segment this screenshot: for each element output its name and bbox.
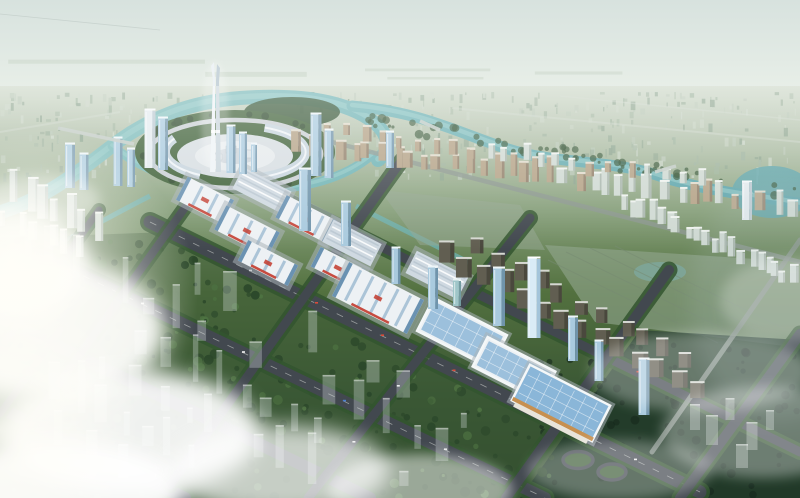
block-tree — [227, 380, 230, 383]
slab-building-side — [487, 267, 491, 284]
slab-building — [515, 262, 528, 280]
block-tree — [501, 415, 510, 424]
block-tree — [351, 337, 360, 346]
tower-highlight — [569, 319, 570, 359]
ghost-building-top — [397, 370, 410, 372]
slab-building-roof — [553, 310, 568, 312]
block-tree — [298, 343, 303, 348]
block-tree — [204, 355, 214, 365]
ghost-building — [367, 360, 380, 382]
block-tree — [409, 383, 417, 391]
horizon-haze-strip — [365, 69, 490, 72]
car — [381, 334, 384, 336]
slab-building — [553, 310, 568, 329]
ghost-building-top — [249, 341, 261, 343]
block-tree — [246, 292, 251, 297]
glass-tower-side — [398, 249, 401, 284]
slab-building-side — [547, 304, 551, 318]
horizon-haze-strip — [535, 71, 623, 74]
ghost-building — [397, 370, 410, 397]
ghost-building-top — [354, 380, 365, 382]
slab-building-roof — [477, 265, 491, 267]
glass-tower-roof — [428, 266, 438, 268]
block-tree — [403, 414, 410, 421]
ghost-building-top — [243, 385, 252, 387]
block-tree — [188, 367, 193, 372]
ghost-building-top — [195, 263, 201, 265]
ghost-building — [461, 413, 467, 428]
ghost-building — [414, 425, 420, 449]
slab-building-side — [631, 323, 634, 336]
slab-building-side — [604, 310, 607, 323]
slab-building-front — [596, 309, 604, 323]
ghost-building — [223, 271, 237, 311]
block-tree — [428, 396, 436, 404]
block-tree — [481, 426, 491, 436]
block-tree — [473, 444, 478, 449]
slab-building — [550, 283, 562, 302]
slab-building-front — [550, 285, 558, 303]
dark-field-tree — [620, 400, 625, 405]
glass-tower-side — [502, 269, 505, 326]
ghost-building-top — [314, 417, 322, 419]
block-tree — [203, 300, 206, 303]
block-tree — [527, 436, 531, 440]
slab-building-front — [553, 311, 564, 329]
block-tree — [427, 422, 436, 431]
block-tree — [212, 284, 218, 290]
slab-building-front — [456, 258, 467, 277]
glass-tower-roof — [453, 279, 461, 281]
ghost-building-top — [223, 271, 237, 273]
car — [343, 400, 346, 402]
car — [453, 370, 456, 372]
block-tree — [234, 366, 239, 371]
block-tree — [256, 412, 260, 416]
slab-building-roof — [596, 328, 611, 330]
slab-building-roof — [515, 262, 528, 264]
ghost-building-top — [461, 413, 467, 415]
slab-building-roof — [550, 283, 562, 285]
tower-highlight — [529, 260, 530, 336]
car — [315, 302, 318, 304]
ghost-building-top — [197, 321, 206, 323]
tower-highlight — [454, 282, 455, 304]
slab-building-side — [501, 255, 505, 267]
block-tree — [211, 311, 218, 318]
slab-building-front — [575, 303, 584, 315]
slab-building-roof — [456, 257, 472, 259]
ghost-building-top — [291, 404, 298, 406]
block-tree — [454, 439, 459, 444]
tower-highlight — [429, 269, 430, 307]
ghost-building-top — [308, 311, 317, 313]
glass-tower-front — [453, 280, 459, 306]
slab-building-side — [524, 264, 528, 280]
block-tree — [367, 392, 372, 397]
block-tree — [243, 284, 252, 293]
glass-tower-roof — [528, 257, 541, 259]
slab-building-front — [623, 322, 632, 336]
block-tree — [432, 416, 438, 422]
slab-building-roof — [575, 301, 588, 303]
slab-building-side — [559, 286, 562, 303]
ghost-building-top — [383, 398, 390, 400]
cloud — [528, 440, 712, 498]
block-tree — [252, 337, 256, 341]
glass-tower-roof — [568, 316, 578, 318]
tower-highlight — [494, 270, 495, 324]
ghost-building-top — [414, 425, 420, 427]
slab-building-front — [517, 290, 528, 309]
block-tree — [477, 413, 481, 417]
block-tree — [457, 387, 467, 397]
ghost-building-top — [216, 350, 222, 352]
slab-building-front — [477, 266, 487, 284]
glass-tower-roof — [595, 340, 604, 342]
car — [242, 351, 245, 353]
glass-tower-side — [459, 281, 461, 306]
aerial-masterplan-image: Aerial master-plan rendering of a rivers… — [0, 0, 800, 498]
dark-field-tree — [607, 421, 615, 429]
block-tree — [273, 395, 283, 405]
slab-building-front — [515, 263, 524, 280]
glass-tower-front — [392, 248, 398, 284]
block-tree — [463, 431, 472, 440]
dark-field-tree — [638, 437, 641, 440]
ghost-building — [354, 380, 365, 420]
slab-building-roof — [596, 307, 607, 309]
ghost-building — [260, 398, 272, 417]
block-tree — [513, 431, 519, 437]
slab-building-side — [510, 271, 514, 292]
glass-tower-roof — [493, 267, 505, 269]
glass-tower-side — [435, 268, 438, 309]
slab-building-side — [546, 272, 549, 288]
ghost-building — [383, 398, 390, 433]
ghost-building — [323, 375, 336, 405]
ghost-building-top — [367, 360, 380, 362]
block-tree — [358, 361, 367, 370]
horizon-haze-strip — [387, 77, 483, 79]
ghost-building-top — [323, 375, 336, 377]
horizon-haze-strip — [8, 60, 205, 64]
ghost-building — [193, 334, 198, 381]
block-tree — [390, 443, 397, 450]
ghost-building — [249, 341, 261, 367]
block-tree — [329, 369, 335, 375]
block-tree — [324, 411, 332, 419]
slab-building-roof — [609, 337, 623, 339]
block-tree — [205, 280, 211, 286]
slab-building-roof — [491, 253, 504, 255]
block-tree — [333, 344, 339, 350]
block-tree — [258, 417, 265, 424]
ghost-building — [197, 321, 206, 341]
slab-building-side — [584, 304, 588, 315]
masterplan-rendering-canvas: Aerial master-plan rendering of a rivers… — [0, 0, 800, 498]
block-tree — [493, 454, 498, 459]
slab-building-side — [582, 322, 587, 338]
ghost-building-top — [260, 398, 272, 400]
ghost-building-top — [436, 428, 449, 430]
tower-highlight — [393, 250, 394, 282]
slab-building-roof — [623, 321, 635, 323]
block-tree — [375, 430, 378, 433]
slab-building-roof — [636, 328, 648, 330]
block-tree — [302, 406, 306, 410]
slab-building-front — [491, 254, 501, 267]
slab-building — [456, 257, 472, 278]
ghost-building — [308, 311, 317, 353]
glass-tower-side — [537, 259, 541, 338]
dark-field-tree — [631, 416, 640, 425]
block-tree — [251, 291, 260, 300]
slab-building-side — [467, 259, 471, 277]
block-tree — [213, 297, 217, 301]
slab-building — [477, 265, 491, 285]
dark-field-tree — [748, 483, 754, 489]
glass-tower-side — [575, 318, 578, 361]
block-tree — [477, 408, 482, 413]
